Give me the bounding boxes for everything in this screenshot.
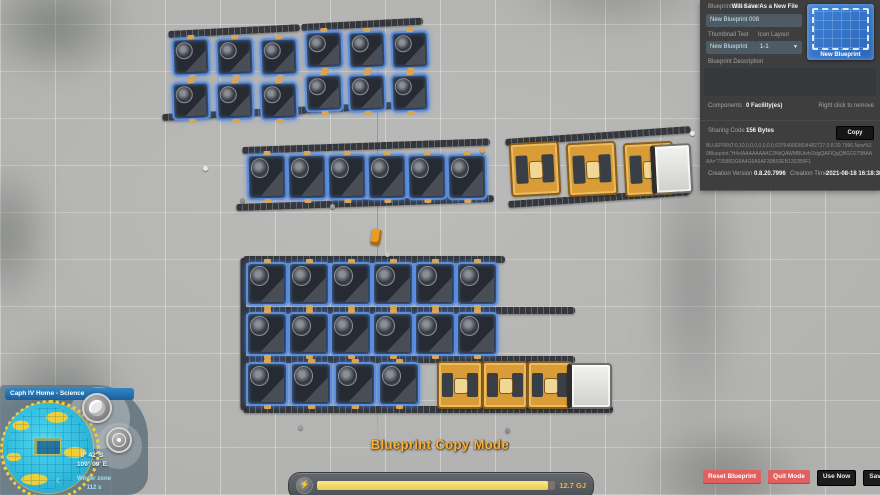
- sorter-pad: [306, 309, 313, 313]
- selected-building[interactable]: [246, 262, 288, 306]
- selected-building[interactable]: [330, 312, 372, 356]
- selected-building[interactable]: [347, 73, 386, 112]
- thumbnail-caption: New Blueprint: [807, 52, 874, 58]
- sorter-pad: [406, 28, 413, 32]
- machine-slot: [487, 373, 498, 398]
- sharing-code-label: Sharing Code: [708, 128, 745, 134]
- sorter-pad: [352, 359, 359, 363]
- creation-version-value: 0.8.20.7996: [754, 171, 786, 177]
- save-path-hint: Will Save As a New File: [732, 4, 798, 10]
- sorter-pad: [406, 71, 413, 75]
- machine-core: [454, 378, 468, 394]
- icon-layout-label: Icon Layout: [758, 32, 789, 38]
- selected-building[interactable]: [171, 81, 210, 120]
- machine-core: [499, 378, 513, 394]
- sorter-pad: [363, 28, 370, 32]
- new-blueprint-thumbnail[interactable]: New Blueprint: [807, 4, 874, 60]
- sorter-pad: [344, 199, 351, 203]
- description-label: Blueprint Description: [708, 59, 763, 65]
- machine-rotor-icon: [382, 366, 401, 386]
- sharing-code-text[interactable]: BLUEPRINT:0,10,0,0,0,0,0,0,0,63764900383…: [706, 143, 874, 166]
- sorter-pad: [275, 35, 282, 39]
- save-path-input[interactable]: New Blueprint 008: [706, 14, 802, 27]
- machine-rotor-icon: [308, 35, 326, 53]
- machine-slot: [557, 373, 568, 398]
- energy-value: 12.7 GJ: [559, 481, 586, 490]
- machine-rotor-icon: [451, 158, 469, 179]
- sorter-pad: [432, 309, 439, 313]
- sorter-pad: [304, 199, 311, 203]
- sorter-pad: [365, 111, 372, 115]
- icon-layout-value: 1-1: [760, 41, 769, 54]
- sorter-pad: [264, 405, 271, 409]
- selected-building[interactable]: [304, 30, 343, 69]
- sorter-pad: [390, 259, 397, 263]
- machine-rotor-icon: [460, 266, 479, 286]
- selected-building[interactable]: [372, 312, 414, 356]
- selected-building[interactable]: [290, 362, 332, 406]
- selected-building[interactable]: [330, 262, 372, 306]
- sorter-pad: [264, 151, 271, 155]
- storage-box[interactable]: [567, 363, 612, 409]
- machine-rotor-icon: [292, 316, 311, 336]
- machine-slot: [629, 155, 642, 184]
- machine-rotor-icon: [219, 42, 237, 60]
- machine-rotor-icon: [250, 316, 269, 336]
- machine-rotor-icon: [263, 42, 281, 60]
- sorter-pad: [264, 259, 271, 263]
- ground-item: [298, 425, 303, 430]
- sorter-pad: [320, 71, 327, 75]
- selected-building[interactable]: [447, 154, 488, 201]
- selected-building[interactable]: [246, 362, 288, 406]
- sorter-pad: [233, 119, 240, 123]
- machine-rotor-icon: [351, 78, 369, 96]
- selected-building[interactable]: [372, 262, 414, 306]
- selected-building[interactable]: [247, 154, 288, 201]
- ground-item: [330, 204, 335, 209]
- thumbnail-text-label: Thumbnail Text: [708, 32, 749, 38]
- sorter-pad: [308, 405, 315, 409]
- sorter-pad: [187, 79, 194, 83]
- blueprint-dashed-icon: [812, 8, 869, 50]
- selected-building[interactable]: [259, 37, 298, 76]
- machine-rotor-icon: [219, 86, 237, 104]
- machine-slot: [515, 155, 528, 184]
- sorter-pad: [320, 28, 327, 32]
- selected-building[interactable]: [347, 30, 386, 69]
- quit-mode-button[interactable]: Quit Mode: [768, 470, 810, 484]
- selected-building[interactable]: [334, 362, 376, 406]
- sorter-pad: [474, 309, 481, 313]
- blueprint-actions: Reset Blueprint Quit Mode Use Now Save B…: [703, 470, 875, 486]
- sorter-pad: [308, 359, 315, 363]
- sorter-pad: [390, 309, 397, 313]
- machine-slot: [532, 373, 543, 398]
- machine-rotor-icon: [294, 366, 313, 386]
- sorter-pad: [424, 151, 431, 155]
- sorter-pad: [464, 151, 471, 155]
- sharing-section: Sharing Code 156 Bytes Copy BLUEPRINT:0,…: [700, 120, 880, 191]
- machine-rotor-icon: [334, 316, 353, 336]
- selected-building[interactable]: [246, 312, 288, 356]
- selected-building[interactable]: [171, 37, 210, 76]
- blueprint-panel: Blueprint Save Path Will Save As a New F…: [700, 0, 880, 190]
- sorter-pad: [408, 111, 415, 115]
- machine-rotor-icon: [250, 266, 269, 286]
- machine-core: [585, 161, 601, 180]
- ground-item: [240, 198, 245, 203]
- machine-rotor-icon: [175, 86, 193, 104]
- sorter-pad: [277, 119, 284, 123]
- selected-building[interactable]: [390, 73, 429, 112]
- machine-rotor-icon: [460, 316, 479, 336]
- machine-slot: [599, 154, 612, 183]
- machine-slot: [442, 373, 453, 398]
- ground-item: [505, 428, 510, 433]
- machine-rotor-icon: [292, 266, 311, 286]
- reset-blueprint-button[interactable]: Reset Blueprint: [703, 470, 761, 484]
- machine-rotor-icon: [371, 158, 389, 179]
- machine-rotor-icon: [376, 266, 395, 286]
- machine-slot: [467, 373, 478, 398]
- sorter-pad: [464, 199, 471, 203]
- assembler-building[interactable]: [437, 361, 483, 409]
- thumbnail-text-input[interactable]: New Blueprint: [706, 41, 756, 54]
- machine-rotor-icon: [251, 158, 269, 179]
- selected-building[interactable]: [327, 154, 368, 201]
- selected-building[interactable]: [288, 262, 330, 306]
- ground-item: [385, 252, 390, 257]
- moon-icon: ☾: [56, 477, 62, 485]
- sorter-pad: [432, 355, 439, 359]
- minimap-panel: Caph IV Home - Science 8° 42' S 109° 09'…: [0, 385, 148, 495]
- assembler-building[interactable]: [482, 361, 528, 409]
- machine-rotor-icon: [394, 78, 412, 96]
- sorter-pad: [348, 259, 355, 263]
- latitude-value: 8° 42' S: [66, 451, 118, 460]
- copy-button[interactable]: Copy: [836, 126, 874, 140]
- selected-building[interactable]: [414, 312, 456, 356]
- storage-box[interactable]: [650, 143, 694, 195]
- blueprint-zone-marker: [33, 437, 61, 455]
- machine-slot: [572, 155, 585, 184]
- machine-rotor-icon: [291, 158, 309, 179]
- selected-building[interactable]: [367, 154, 408, 201]
- creation-version-label: Creation Version: [708, 171, 752, 177]
- selected-building[interactable]: [304, 73, 343, 112]
- longitude-value: 109° 09' E: [66, 460, 118, 469]
- machine-core: [528, 161, 544, 180]
- selected-building[interactable]: [288, 312, 330, 356]
- sorter-pad: [352, 405, 359, 409]
- sorter-pad: [264, 199, 271, 203]
- selected-building[interactable]: [456, 262, 498, 306]
- selected-building[interactable]: [456, 312, 498, 356]
- zone-time: 112 s: [70, 484, 118, 493]
- selected-building[interactable]: [414, 262, 456, 306]
- energy-fill: [317, 481, 548, 490]
- machine-rotor-icon: [338, 366, 357, 386]
- selected-building[interactable]: [215, 81, 254, 120]
- sorter-pad: [396, 405, 403, 409]
- sorter-pad: [264, 359, 271, 363]
- sorter-pad: [187, 35, 194, 39]
- game-viewport[interactable]: Blueprint Copy Mode Blueprint Save Path …: [0, 0, 880, 495]
- zone-info: Winter zone 112 s: [70, 475, 118, 493]
- machine-rotor-icon: [308, 78, 326, 96]
- selected-building[interactable]: [378, 362, 420, 406]
- components-label: Components: [708, 103, 742, 109]
- planet-icon: [89, 400, 105, 416]
- orbit-icon: [112, 433, 126, 447]
- planet-name: Caph IV Home - Science: [5, 388, 134, 400]
- sorter-pad: [344, 151, 351, 155]
- machine-core: [544, 378, 558, 394]
- sorter-pad: [432, 259, 439, 263]
- ground-item: [480, 148, 485, 153]
- use-now-button[interactable]: Use Now: [817, 470, 856, 486]
- sorter-pad: [264, 309, 271, 313]
- selected-building[interactable]: [390, 30, 429, 69]
- machine-slot: [512, 373, 523, 398]
- machine-rotor-icon: [334, 266, 353, 286]
- sharing-code-size: 156 Bytes: [746, 128, 774, 134]
- components-hint: Right click to remove: [818, 103, 874, 109]
- sorter-pad: [304, 151, 311, 155]
- energy-icon: ⚡: [296, 477, 313, 494]
- sorter-pad: [275, 79, 282, 83]
- sorter-pad: [189, 119, 196, 123]
- ground-item: [203, 166, 208, 171]
- sorter-pad: [231, 35, 238, 39]
- machine-rotor-icon: [418, 316, 437, 336]
- creation-time-value: 2021-08-18 16:18:38: [826, 171, 880, 177]
- icon-layout-dropdown[interactable]: 1-1 ▼: [756, 41, 802, 54]
- ground-item: [690, 131, 695, 136]
- components-value: 0 Facility(es): [746, 103, 782, 109]
- selected-building[interactable]: [215, 37, 254, 76]
- selected-building[interactable]: [407, 154, 448, 201]
- assembler-building[interactable]: [566, 141, 619, 198]
- star-map-button[interactable]: [106, 427, 132, 453]
- chevron-down-icon: ▼: [793, 41, 798, 54]
- energy-track: [317, 481, 555, 490]
- coordinates: 8° 42' S 109° 09' E: [66, 451, 118, 470]
- creation-time-label: Creation Time: [790, 171, 827, 177]
- zone-label: Winter zone: [70, 475, 118, 484]
- machine-rotor-icon: [376, 316, 395, 336]
- sorter-pad: [348, 309, 355, 313]
- sorter-pad: [322, 111, 329, 115]
- machine-rotor-icon: [411, 158, 429, 179]
- sorter-pad: [363, 71, 370, 75]
- sorter-pad: [384, 199, 391, 203]
- sorter-pad: [474, 355, 481, 359]
- sorter-pad: [396, 359, 403, 363]
- machine-rotor-icon: [394, 35, 412, 53]
- machine-rotor-icon: [418, 266, 437, 286]
- selected-building[interactable]: [287, 154, 328, 201]
- machine-rotor-icon: [250, 366, 269, 386]
- machine-rotor-icon: [263, 86, 281, 104]
- machine-rotor-icon: [175, 42, 193, 60]
- planet-view-button[interactable]: [82, 393, 112, 423]
- assembler-building[interactable]: [509, 141, 562, 198]
- machine-rotor-icon: [351, 35, 369, 53]
- sorter-pad: [231, 79, 238, 83]
- description-textarea[interactable]: [704, 68, 876, 96]
- sorter-pad: [474, 259, 481, 263]
- sorter-pad: [384, 151, 391, 155]
- machine-slot: [542, 154, 555, 183]
- mecha-energy-bar: ⚡ 12.7 GJ: [288, 472, 594, 495]
- machine-rotor-icon: [331, 158, 349, 179]
- sorter-pad: [306, 259, 313, 263]
- sorter-pad: [424, 199, 431, 203]
- save-blueprint-button[interactable]: Save Blueprint: [863, 470, 880, 486]
- selected-building[interactable]: [259, 81, 298, 120]
